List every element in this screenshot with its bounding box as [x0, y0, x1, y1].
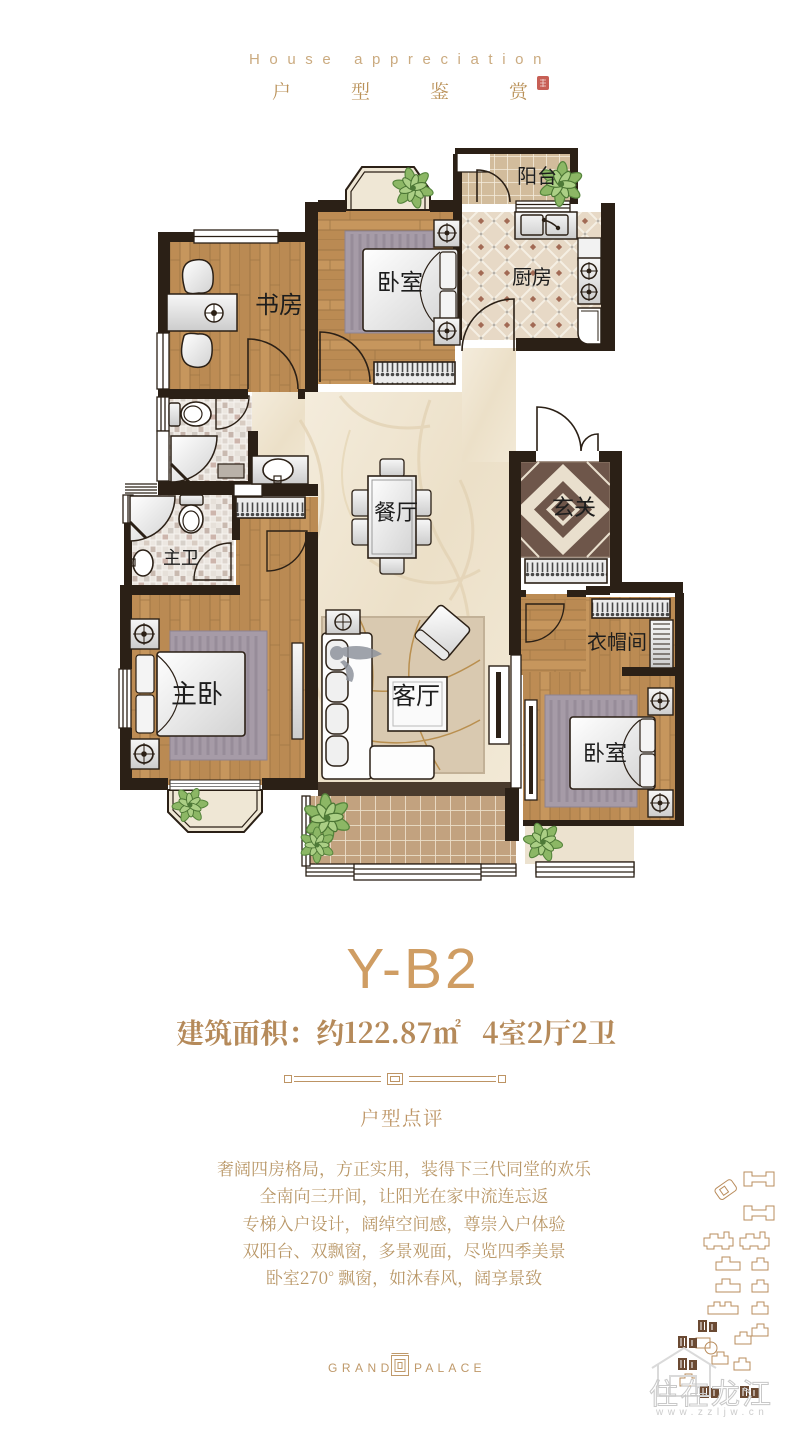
svg-text:卧室: 卧室: [583, 736, 627, 768]
svg-text:客厅: 客厅: [392, 676, 440, 711]
svg-text:主卧: 主卧: [171, 674, 223, 711]
svg-text:餐厅: 餐厅: [374, 495, 418, 527]
svg-text:厨房: 厨房: [512, 261, 552, 290]
svg-text:主卫: 主卫: [163, 544, 199, 570]
svg-text:衣帽间: 衣帽间: [587, 626, 647, 655]
svg-text:www.zzljw.cn: www.zzljw.cn: [655, 1403, 768, 1418]
svg-text:阳台: 阳台: [517, 160, 557, 189]
svg-text:书房: 书房: [255, 285, 303, 320]
svg-text:卧室: 卧室: [377, 263, 423, 297]
svg-text:玄关: 玄关: [552, 490, 596, 522]
